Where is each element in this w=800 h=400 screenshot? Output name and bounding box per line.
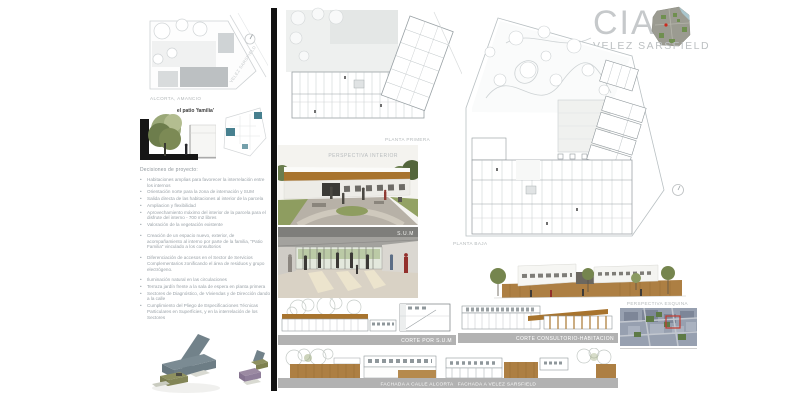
decision-item: Diferenciación de accesos en el Sector d… [140, 255, 270, 272]
site-plan-drawing: VELEZ SARSFIELD [144, 13, 268, 97]
corte-sum-label: CORTE POR S.U.M [401, 338, 452, 344]
perspectiva-esquina-label: PERSPECTIVA ESQUINA [600, 301, 688, 306]
decision-item: Salida directa de las habitaciones al in… [140, 196, 270, 202]
decision-item: Valoración de la vegetación existente [140, 222, 270, 228]
patio-caption: el patio 'familia' [177, 108, 214, 114]
perspectiva-interior-render: PERSPECTIVA INTERIOR [278, 145, 418, 225]
north-arrow-icon [245, 34, 255, 44]
decision-item: Terraza jardín frente a la sala de esper… [140, 284, 270, 290]
decisions-heading: Decisiones de proyecto: [140, 167, 270, 173]
planta-primera-label: PLANTA PRIMERA [385, 137, 430, 142]
presentation-board: VELEZ SARSFIELD ALCORTA, AMANCIO el pati… [0, 0, 800, 400]
decision-item: Iluminación natural en las circulaciones [140, 277, 270, 283]
mini-plan-diagram [220, 104, 268, 159]
patio-section-image: el patio 'familia' [140, 103, 216, 160]
perspectiva-esquina-render [490, 260, 690, 302]
planta-primera-drawing [284, 4, 462, 136]
street-label-alcorta: ALCORTA, AMANCIO [150, 96, 201, 101]
decision-item: Habitaciones amplias para favorecer la i… [140, 177, 270, 188]
decisions-group-1: Habitaciones amplias para favorecer la i… [140, 177, 270, 228]
fachada-velez-label: FACHADA A VELEZ SARSFIELD [458, 381, 537, 387]
sum-label: S.U.M [397, 231, 414, 237]
axon-diagram-large [146, 326, 234, 398]
map-underline [620, 348, 697, 349]
decision-item: Orientación norte para la zona de intern… [140, 189, 270, 195]
planta-baja-drawing [456, 8, 668, 240]
board-divider [271, 8, 277, 391]
aerial-map-image [620, 308, 697, 346]
decision-item: Sectores de Diagnóstico, de Viviendas y … [140, 291, 270, 302]
corte-consultorio-drawing: CORTE CONSULTORIO-HABITACION [458, 296, 618, 343]
decision-item: Creación de un espacio nuevo, exterior, … [140, 233, 270, 250]
planta-baja-label: PLANTA BAJA [453, 241, 487, 246]
decisions-group-3: Diferenciación de accesos en el Sector d… [140, 255, 270, 272]
decision-item: Ampliacion y flexibilidad [140, 203, 270, 209]
corte-sum-drawing: CORTE POR S.U.M [278, 298, 456, 345]
perspectiva-interior-label: PERSPECTIVA INTERIOR [328, 153, 398, 159]
decision-item: Cumplimiento del Pliego de Especificacio… [140, 303, 270, 320]
decision-item: Aprovechamiento máximo del interior de l… [140, 210, 270, 221]
axon-diagram-small [235, 344, 273, 392]
decisions-block: Decisiones de proyecto: Habitaciones amp… [140, 167, 270, 325]
fachada-alcorta-label: FACHADA A CALLE ALCORTA [380, 381, 454, 387]
corte-consultorio-label: CORTE CONSULTORIO-HABITACION [516, 336, 614, 342]
facades-drawing: FACHADA A CALLE ALCORTA FACHADA A VELEZ … [278, 348, 618, 388]
decisions-group-4: Iluminación natural en las circulaciones… [140, 277, 270, 320]
sum-render: S.U.M [278, 227, 418, 298]
decisions-group-2: Creación de un espacio nuevo, exterior, … [140, 233, 270, 250]
north-arrow-icon [671, 183, 685, 197]
